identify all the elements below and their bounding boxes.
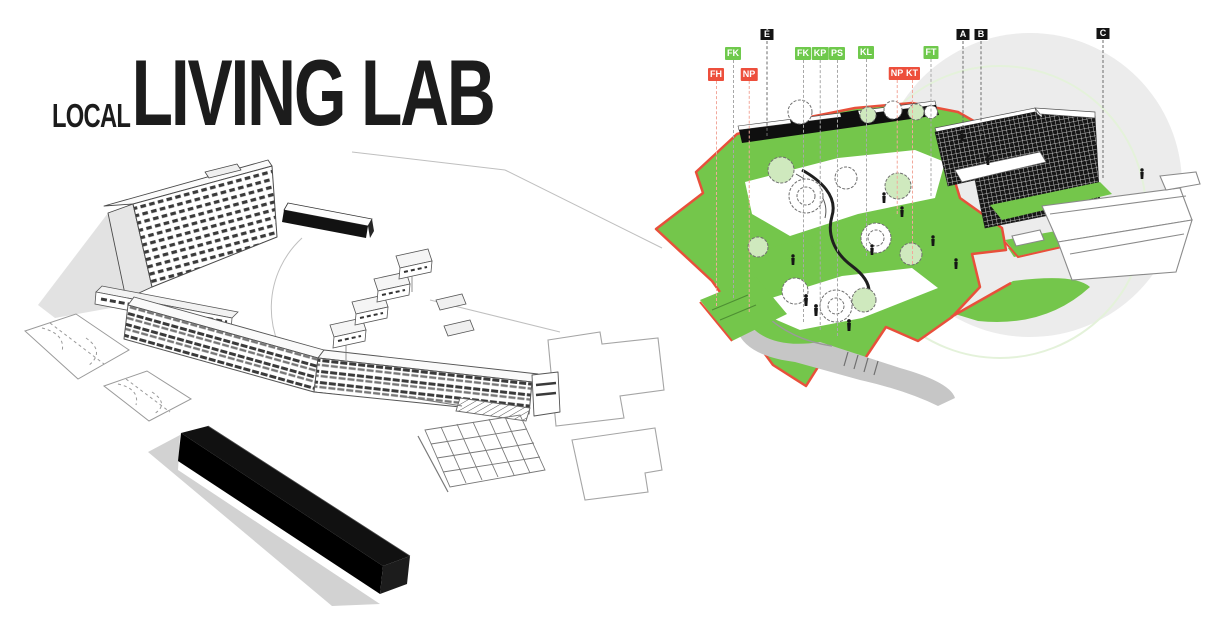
marker-label-é: É (760, 28, 775, 41)
marker-leader-line (748, 81, 749, 312)
marker-leader-line (896, 80, 897, 214)
marker-label-ft: FT (924, 46, 939, 59)
marker-np-2: NP (741, 68, 758, 312)
marker-leader-line (963, 41, 964, 128)
title-prefix: LOCAL (52, 102, 132, 131)
marker-c-13: C (1096, 27, 1111, 178)
marker-a-11: A (956, 28, 971, 128)
marker-fk-4: FK (795, 47, 811, 322)
marker-leader-line (1103, 40, 1104, 178)
marker-leader-line (931, 59, 932, 196)
marker-kl-7: KL (858, 46, 874, 256)
marker-b-12: B (974, 28, 989, 136)
marker-label-b: B (974, 28, 989, 41)
marker-leader-line (912, 80, 913, 264)
marker-leader-line (981, 41, 982, 136)
marker-leader-line (803, 60, 804, 322)
marker-leader-line (733, 60, 734, 298)
marker-leader-line (767, 41, 768, 136)
poster-canvas: LOCALLIVING LAB FHFKNPÉFKKPPSKLNPKTFTABC (0, 0, 1213, 617)
marker-ps-6: PS (829, 47, 845, 336)
marker-leader-line (836, 60, 837, 336)
marker-label-fk: FK (795, 47, 811, 60)
marker-fh-0: FH (708, 68, 724, 306)
logo-title-inner: LOCALLIVING LAB (52, 54, 494, 131)
marker-kt-9: KT (904, 67, 920, 264)
marker-fk-1: FK (725, 47, 741, 298)
marker-leader-line (716, 81, 717, 306)
marker-leader-line (819, 60, 820, 330)
marker-label-fh: FH (708, 68, 724, 81)
marker-label-ps: PS (829, 47, 845, 60)
marker-label-kt: KT (904, 67, 920, 80)
marker-label-c: C (1096, 27, 1111, 40)
marker-é-3: É (760, 28, 775, 136)
title-main: LIVING LAB (132, 54, 494, 131)
marker-kp-5: KP (812, 47, 829, 330)
marker-label-a: A (956, 28, 971, 41)
logo-title: LOCALLIVING LAB (52, 54, 665, 131)
marker-leader-line (866, 59, 867, 256)
marker-label-kl: KL (858, 46, 874, 59)
marker-np-8: NP (889, 67, 906, 214)
marker-label-np: NP (889, 67, 906, 80)
marker-label-np: NP (741, 68, 758, 81)
marker-ft-10: FT (924, 46, 939, 196)
marker-label-fk: FK (725, 47, 741, 60)
marker-label-kp: KP (812, 47, 829, 60)
